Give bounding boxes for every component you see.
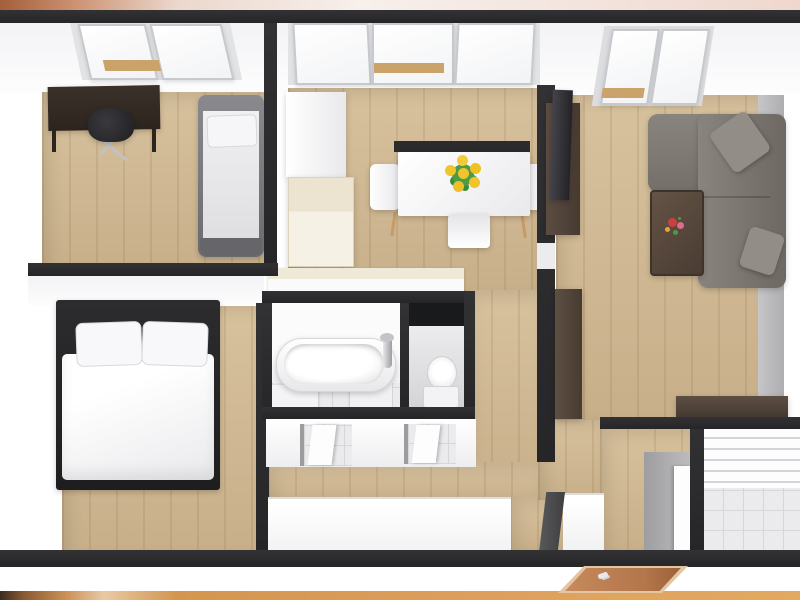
dining-chair-left [370, 164, 400, 210]
office-skylight-open-sash [103, 60, 162, 71]
living-console-counter [676, 396, 788, 419]
refrigerator-unit [288, 177, 354, 267]
toilet-bowl [427, 356, 457, 390]
single-bed-pillow [206, 114, 257, 148]
bathroom-storage-niche [409, 303, 464, 326]
wc-door-panel [412, 425, 441, 463]
living-skylight-open-sash [601, 88, 645, 98]
kitchen-skylight-pane-3 [454, 23, 535, 85]
single-bed-footboard [200, 238, 262, 256]
wall-bathroom-wc-divider [400, 303, 409, 408]
double-bed-pillow-left [75, 321, 142, 367]
tv-panel [549, 90, 573, 201]
bathroom-wall-west [262, 303, 272, 419]
wall-office-kitchen [264, 23, 277, 269]
south-inner-wall-a [268, 497, 511, 553]
utility-stair-stripes [703, 428, 800, 490]
dining-chair-bottom [448, 214, 490, 248]
kitchen-skylight-open-sash [374, 63, 444, 73]
wall-entry-utility [690, 419, 704, 552]
living-sideboard [555, 289, 582, 419]
wall-south [0, 550, 800, 567]
kitchen-skylight-pane-2 [372, 23, 454, 85]
kitchen-tall-cabinet [286, 92, 346, 177]
bathroom-wall-east [464, 291, 475, 419]
floor-plan-render [0, 0, 800, 600]
toilet-tank [423, 386, 459, 408]
wall-office-bedroom [28, 263, 278, 276]
kitchen-skylight-pane-1 [292, 23, 371, 85]
desk-leg-left [52, 128, 56, 152]
coffee-table-flowers [668, 218, 677, 227]
bathtub-inner [284, 344, 384, 384]
bottom-border-bar [0, 591, 800, 600]
wall-living-south-cap [600, 417, 800, 429]
double-bed-duvet [62, 354, 214, 480]
top-border-bar [0, 0, 800, 10]
office-skylight-pane-1 [78, 24, 159, 80]
bathroom-wall-north [262, 291, 475, 303]
bathroom-wall-south [262, 407, 475, 419]
office-chair-seat [88, 108, 134, 142]
hallway-floor [268, 462, 540, 502]
dining-wall-cap [394, 141, 530, 152]
double-bed-pillow-right [141, 321, 208, 367]
kitchen-living-doorway [537, 243, 555, 269]
sunflower-bouquet-flowers [458, 168, 469, 179]
desk-leg-right [152, 126, 156, 152]
bathroom-door-panel-1 [308, 425, 337, 465]
bathtub-faucet-head [380, 333, 394, 342]
kitchen-counter [268, 268, 464, 292]
wall-north [0, 10, 800, 23]
office-skylight-pane-2 [150, 24, 235, 80]
coffee-table [650, 190, 704, 276]
south-inner-wall-b [563, 493, 604, 553]
utility-tile-floor [703, 488, 800, 551]
sofa-seat-line [700, 196, 770, 198]
